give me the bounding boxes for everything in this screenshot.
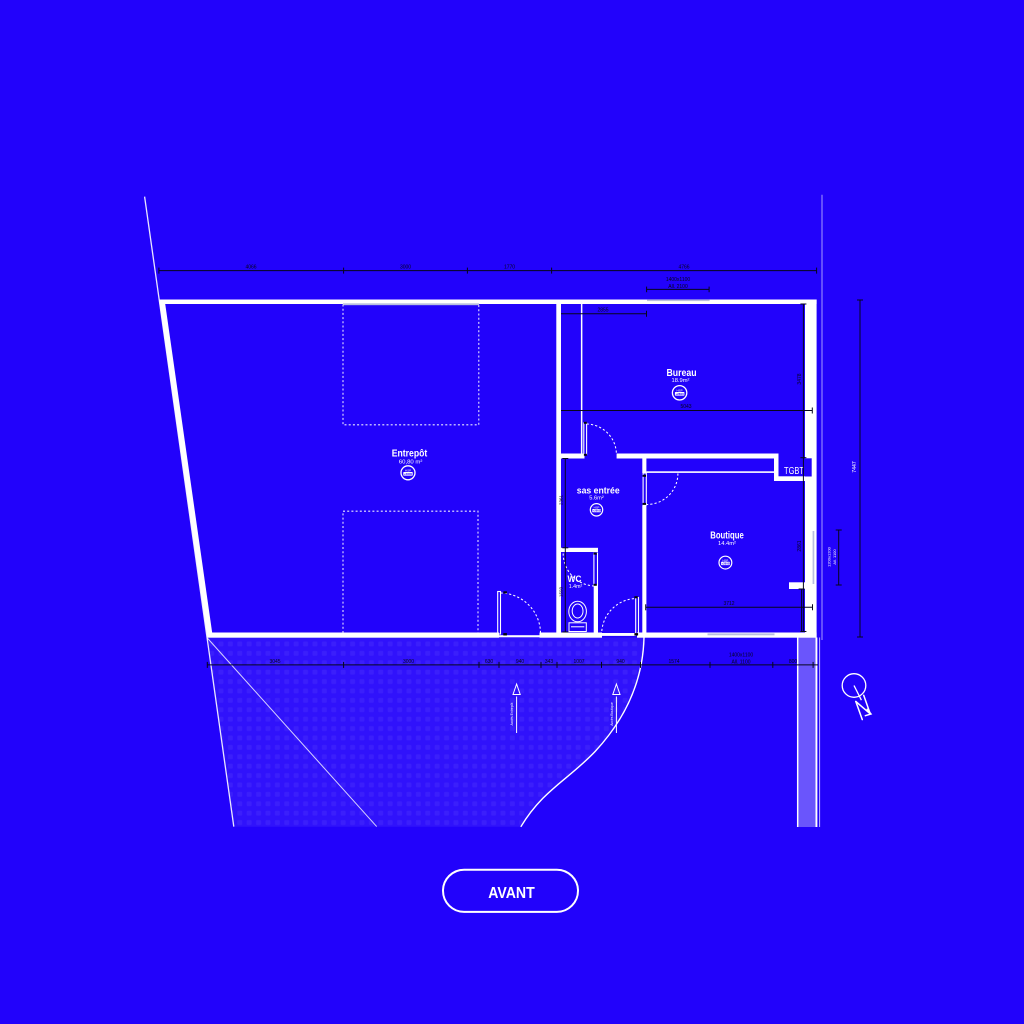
- svg-text:WC: WC: [568, 574, 582, 584]
- svg-text:630: 630: [485, 659, 494, 665]
- svg-text:3712: 3712: [723, 601, 734, 607]
- svg-text:18.9m²: 18.9m²: [672, 378, 690, 384]
- svg-text:2361: 2361: [559, 494, 564, 505]
- svg-text:4066: 4066: [245, 265, 256, 271]
- svg-text:1400x1100: 1400x1100: [729, 653, 754, 659]
- svg-text:+2800: +2800: [721, 562, 729, 566]
- svg-text:Entrepôt: Entrepôt: [392, 449, 428, 460]
- svg-text:All. 1100: All. 1100: [731, 660, 750, 666]
- svg-text:5.6m²: 5.6m²: [589, 495, 604, 501]
- svg-text:343: 343: [545, 659, 554, 665]
- svg-text:1007: 1007: [573, 659, 584, 665]
- svg-text:Accès Boutique: Accès Boutique: [610, 702, 614, 726]
- svg-text:All. 1100: All. 1100: [832, 549, 837, 565]
- svg-text:3045: 3045: [269, 659, 280, 665]
- svg-text:1400x1100: 1400x1100: [666, 277, 691, 283]
- svg-text:+2800: +2800: [675, 392, 684, 396]
- svg-text:3000: 3000: [403, 659, 414, 665]
- svg-text:TGBT: TGBT: [784, 466, 804, 477]
- svg-text:1200x1200: 1200x1200: [827, 546, 832, 567]
- svg-text:1574: 1574: [668, 659, 679, 665]
- svg-text:3000: 3000: [400, 265, 411, 271]
- svg-text:14.4m²: 14.4m²: [718, 541, 736, 547]
- svg-text:AVANT: AVANT: [488, 885, 535, 902]
- svg-text:1770: 1770: [504, 265, 515, 271]
- svg-text:940: 940: [616, 659, 625, 665]
- svg-text:Accès Entrepôt: Accès Entrepôt: [510, 702, 514, 725]
- svg-text:+2800: +2800: [593, 509, 601, 513]
- svg-text:sas entrée: sas entrée: [577, 486, 620, 496]
- svg-text:800: 800: [789, 659, 798, 665]
- svg-text:3478: 3478: [797, 373, 803, 384]
- svg-text:Boutique: Boutique: [710, 531, 744, 542]
- svg-text:+2800: +2800: [404, 472, 413, 476]
- svg-text:2855: 2855: [597, 307, 608, 313]
- svg-text:2861: 2861: [797, 540, 803, 551]
- svg-text:940: 940: [516, 659, 525, 665]
- svg-text:4766: 4766: [678, 265, 689, 271]
- svg-text:60,80 m²: 60,80 m²: [399, 459, 423, 465]
- svg-text:1.4m²: 1.4m²: [569, 584, 583, 590]
- svg-text:7447: 7447: [852, 461, 858, 473]
- svg-text:1593: 1593: [559, 586, 564, 597]
- svg-text:5043: 5043: [680, 404, 691, 410]
- svg-text:All. 2100: All. 2100: [668, 284, 688, 290]
